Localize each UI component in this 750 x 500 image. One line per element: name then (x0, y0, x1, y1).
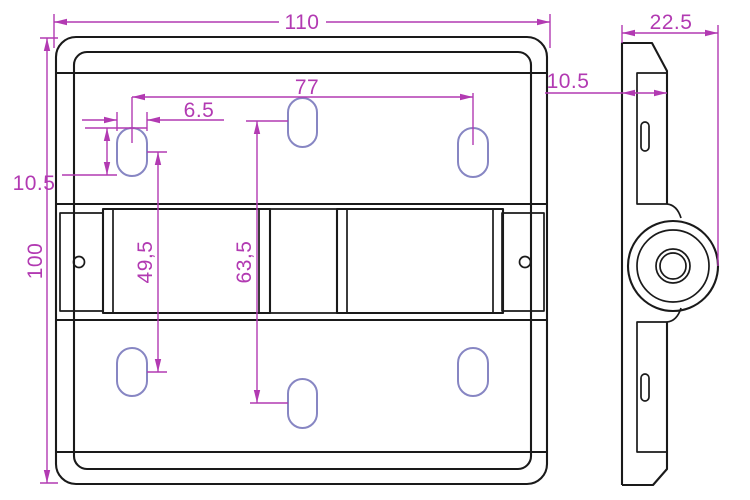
arrowhead-up (104, 128, 110, 141)
arrowhead-left (132, 94, 145, 100)
dim-text-slot-span: 77 (295, 76, 319, 99)
dim-text-depth: 22.5 (650, 11, 693, 34)
arrowhead-right (705, 30, 718, 36)
side-lower-slit (641, 374, 649, 401)
arrowhead-left (147, 117, 160, 123)
dim-width-110: 110 (54, 11, 550, 48)
arrowhead-left (54, 19, 67, 25)
side-body-bottom-outline (622, 322, 667, 485)
arrowhead-left (622, 30, 635, 36)
left-pivot-hole (74, 257, 85, 268)
mid-band (56, 204, 547, 320)
arrowhead-up (155, 152, 161, 165)
hinge-top-fillet (667, 204, 681, 218)
band-left-end-box (60, 213, 103, 311)
bracket-dimension-drawing: 110 100 77 6.5 (0, 0, 750, 500)
dimensions: 110 100 77 6.5 (13, 11, 718, 483)
dim-slot-height-10-5: 10.5 (13, 128, 147, 195)
arrowhead-right (104, 117, 117, 123)
mounting-slot-bottom-middle (288, 379, 317, 428)
mounting-slot-bottom-left (117, 348, 147, 396)
band-box-right (337, 209, 503, 313)
dim-text-thickness: 10.5 (547, 70, 590, 93)
dim-outer-slots-49-5: 49,5 (134, 152, 167, 372)
arrowhead-up (44, 38, 50, 51)
arrowhead-down (44, 470, 50, 483)
dim-thickness-10-5: 10.5 (545, 70, 667, 96)
dim-text-middle-slots: 63,5 (233, 241, 256, 284)
band-right-end-box (502, 213, 544, 311)
arrowhead-right (537, 19, 550, 25)
side-view (622, 43, 718, 485)
arrowhead-down (104, 162, 110, 175)
dim-height-100: 100 (24, 38, 58, 483)
dim-text-slot-width: 6.5 (184, 99, 215, 122)
mounting-slot-bottom-right (458, 348, 488, 396)
arrowhead-down (254, 390, 260, 403)
arrowhead-up (254, 121, 260, 134)
arrowhead-left (622, 90, 635, 96)
hinge-boss-outer-circle (628, 221, 718, 311)
dim-text-width: 110 (285, 11, 320, 34)
arrowhead-right (460, 94, 473, 100)
arrowhead-right (654, 90, 667, 96)
mounting-slot-top-middle (288, 98, 317, 147)
mounting-slots (117, 98, 488, 428)
dim-middle-slots-63-5: 63,5 (233, 121, 288, 403)
dim-text-slot-height: 10.5 (13, 172, 56, 195)
technical-drawing-page: 110 100 77 6.5 (0, 0, 750, 500)
side-upper-slit (641, 122, 649, 151)
dim-text-outer-slots: 49,5 (134, 241, 157, 284)
dim-text-height: 100 (24, 243, 47, 280)
dim-slot-width-6-5: 6.5 (82, 99, 224, 131)
right-pivot-hole (520, 257, 531, 268)
arrowhead-down (155, 359, 161, 372)
